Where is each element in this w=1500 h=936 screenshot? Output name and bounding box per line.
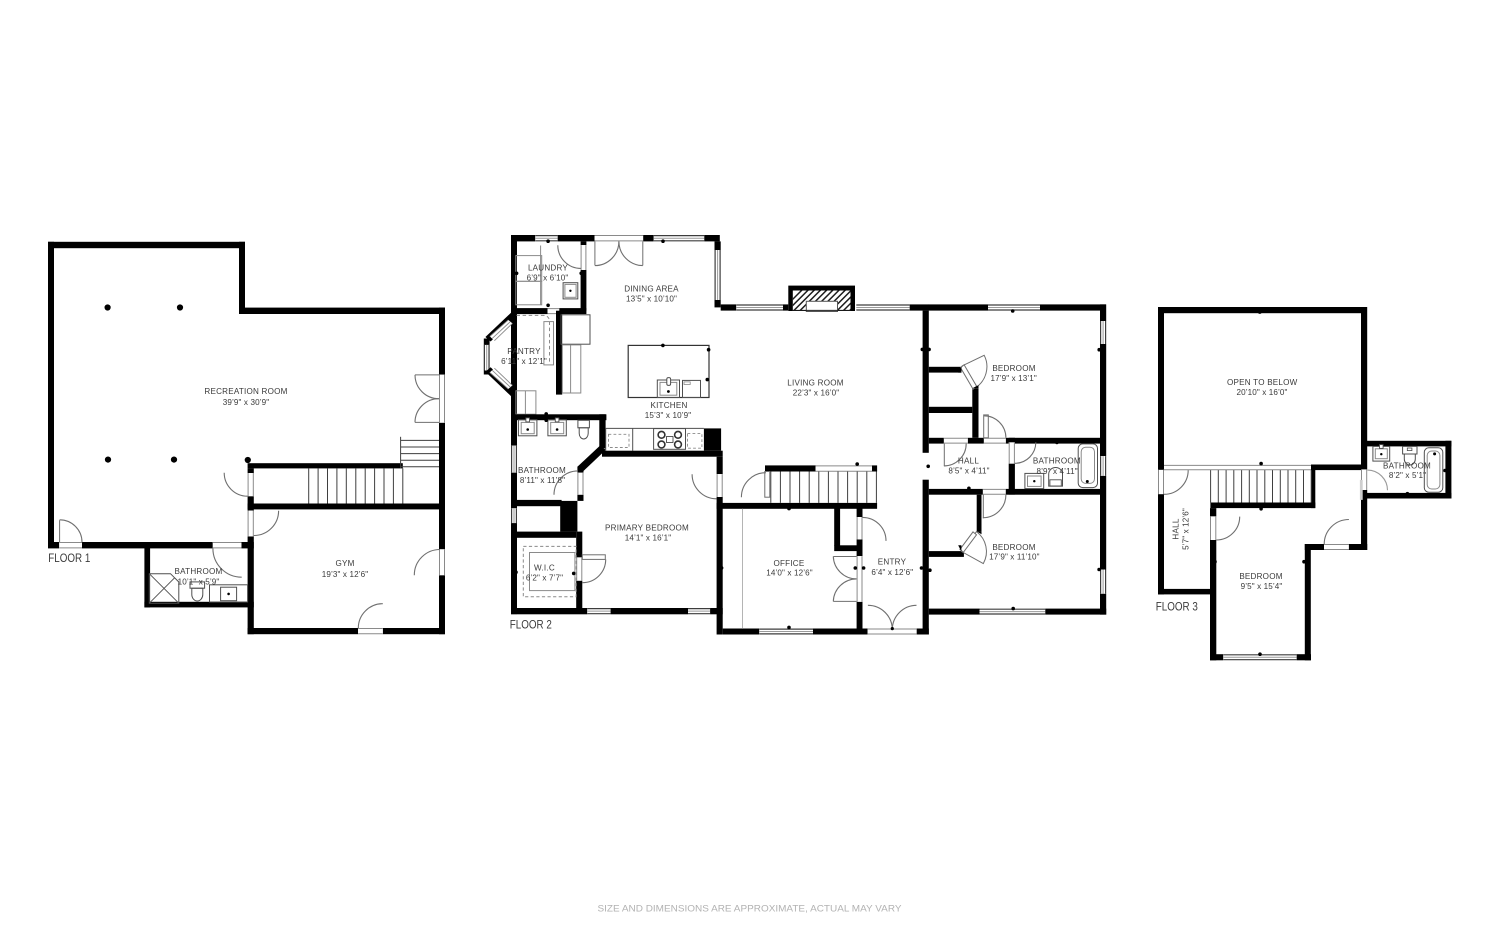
svg-text:FLOOR 2: FLOOR 2	[510, 617, 552, 631]
svg-text:6’4" x 12’6": 6’4" x 12’6"	[871, 568, 913, 577]
svg-text:GYM: GYM	[335, 559, 354, 568]
svg-text:8’2" x 5’1": 8’2" x 5’1"	[1389, 471, 1426, 480]
svg-text:8’11" x 11’8": 8’11" x 11’8"	[520, 476, 565, 485]
svg-text:22’3" x 16’0": 22’3" x 16’0"	[793, 389, 839, 398]
svg-text:LIVING ROOM: LIVING ROOM	[787, 379, 843, 388]
svg-text:OFFICE: OFFICE	[774, 559, 805, 568]
svg-text:PANTRY: PANTRY	[507, 347, 541, 356]
svg-text:SIZE AND DIMENSIONS ARE APPROX: SIZE AND DIMENSIONS ARE APPROXIMATE, ACT…	[598, 904, 903, 915]
svg-text:BATHROOM: BATHROOM	[518, 466, 566, 475]
svg-text:14’0" x 12’6": 14’0" x 12’6"	[766, 569, 812, 578]
svg-text:DINING AREA: DINING AREA	[624, 285, 679, 294]
svg-text:RECREATION ROOM: RECREATION ROOM	[204, 387, 287, 396]
svg-text:17’9" x 11’10": 17’9" x 11’10"	[989, 553, 1039, 562]
svg-text:19’3" x 12’6": 19’3" x 12’6"	[322, 570, 368, 579]
svg-text:6’11" x 12’1": 6’11" x 12’1"	[501, 357, 547, 366]
svg-text:8’5" x 4’11": 8’5" x 4’11"	[948, 467, 989, 476]
svg-text:FLOOR 1: FLOOR 1	[48, 551, 90, 565]
svg-text:BATHROOM: BATHROOM	[1383, 461, 1431, 470]
svg-text:BEDROOM: BEDROOM	[992, 364, 1035, 373]
svg-text:LAUNDRY: LAUNDRY	[528, 264, 568, 273]
svg-text:W.I.C: W.I.C	[534, 564, 555, 573]
svg-text:20’10" x 16’0": 20’10" x 16’0"	[1236, 388, 1287, 397]
svg-text:KITCHEN: KITCHEN	[650, 401, 687, 410]
svg-text:10’1" x 5’9": 10’1" x 5’9"	[178, 578, 220, 587]
svg-text:BEDROOM: BEDROOM	[1239, 572, 1282, 581]
svg-text:39’9" x 30’9": 39’9" x 30’9"	[223, 398, 269, 407]
svg-text:BATHROOM: BATHROOM	[1033, 457, 1081, 466]
svg-text:14’1" x 16’1": 14’1" x 16’1"	[625, 534, 671, 543]
svg-text:9’5" x 15’4": 9’5" x 15’4"	[1241, 582, 1283, 591]
svg-text:6’2" x 7’7": 6’2" x 7’7"	[526, 574, 563, 583]
svg-text:5’7" x 12’6": 5’7" x 12’6"	[1182, 508, 1191, 550]
svg-text:BEDROOM: BEDROOM	[992, 543, 1035, 552]
svg-text:6’9" x 6’10": 6’9" x 6’10"	[527, 274, 569, 283]
svg-text:8’9" x 4’11": 8’9" x 4’11"	[1036, 467, 1077, 476]
svg-text:17’9" x 13’1": 17’9" x 13’1"	[990, 374, 1036, 383]
svg-text:13’5" x 10’10": 13’5" x 10’10"	[626, 295, 677, 304]
svg-text:HALL: HALL	[1172, 518, 1181, 539]
svg-text:HALL: HALL	[958, 457, 979, 466]
svg-text:BATHROOM: BATHROOM	[175, 567, 223, 576]
svg-text:ENTRY: ENTRY	[878, 558, 907, 567]
svg-text:15’3" x 10’9": 15’3" x 10’9"	[645, 411, 691, 420]
svg-text:FLOOR 3: FLOOR 3	[1156, 599, 1198, 613]
svg-text:PRIMARY BEDROOM: PRIMARY BEDROOM	[605, 524, 689, 533]
svg-text:OPEN TO BELOW: OPEN TO BELOW	[1227, 378, 1298, 387]
